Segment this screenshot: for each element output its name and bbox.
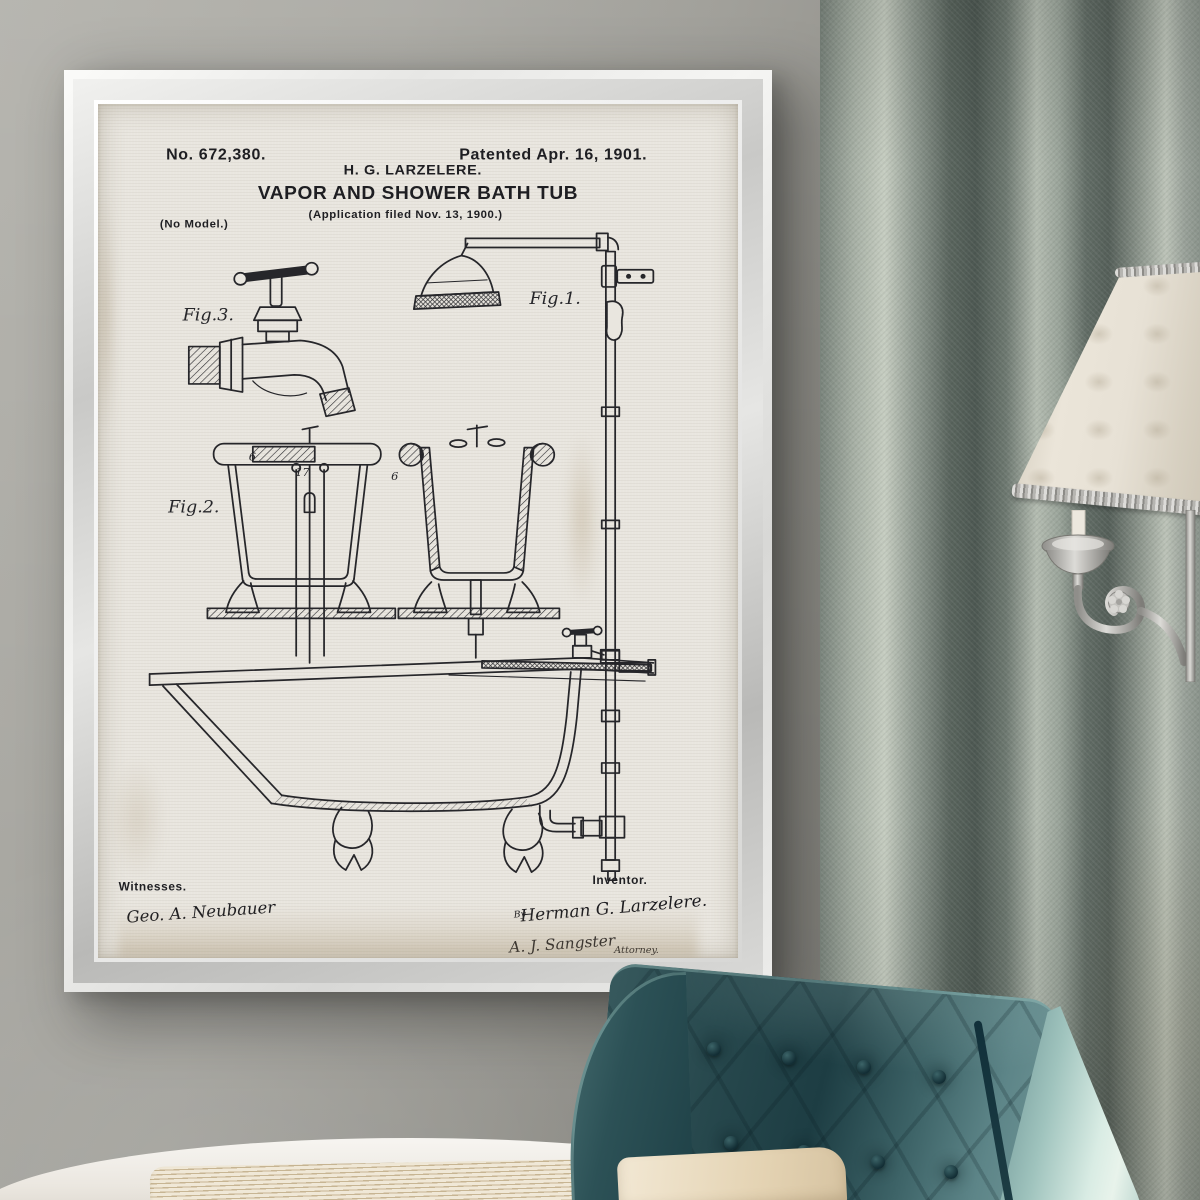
patent-drawing: No. 672,380. Patented Apr. 16, 1901. H. … xyxy=(98,104,738,958)
figure-2-sections-drawing xyxy=(207,425,559,663)
ref-6-right: 6 xyxy=(391,470,398,483)
ref-6-left: 6 xyxy=(249,451,256,464)
frame-bevel: No. 672,380. Patented Apr. 16, 1901. H. … xyxy=(73,79,763,983)
patent-number-text: No. 672,380. xyxy=(166,147,266,164)
chair-button xyxy=(932,1070,946,1084)
inventor-name-text: H. G. LARZELERE. xyxy=(344,163,482,179)
ref-17: 17 xyxy=(295,466,310,479)
lamp-arm xyxy=(1020,510,1200,682)
chair-button xyxy=(707,1042,721,1056)
patent-footer: Witnesses. Geo. A. Neubauer Inventor. By… xyxy=(119,874,708,956)
chair-button xyxy=(857,1060,871,1074)
no-model-text: (No Model.) xyxy=(160,218,229,230)
attorney-label: Attorney. xyxy=(613,945,659,956)
claw-foot xyxy=(503,809,542,872)
fig1-label: Fig.1. xyxy=(528,289,580,309)
inventor-label: Inventor. xyxy=(592,874,647,887)
witness-signature: Geo. A. Neubauer xyxy=(126,898,277,927)
patent-date-text: Patented Apr. 16, 1901. xyxy=(459,147,647,164)
chair-button xyxy=(944,1165,958,1179)
scroll-arm xyxy=(1078,589,1141,630)
chair-button xyxy=(871,1155,885,1169)
chair-button xyxy=(782,1051,796,1065)
fig2-label: Fig.2. xyxy=(167,497,219,517)
figure-1-shower-drawing xyxy=(414,233,653,837)
lamp-shade xyxy=(1012,262,1200,514)
framed-patent-print: No. 672,380. Patented Apr. 16, 1901. H. … xyxy=(64,70,772,992)
patent-paper: No. 672,380. Patented Apr. 16, 1901. H. … xyxy=(98,104,738,958)
witnesses-label: Witnesses. xyxy=(119,880,187,893)
main-bathtub-drawing xyxy=(150,627,656,881)
fig3-label: Fig.3. xyxy=(182,305,234,325)
patent-header: No. 672,380. Patented Apr. 16, 1901. H. … xyxy=(160,147,647,231)
chair-button xyxy=(724,1136,738,1150)
frame-inner-lip: No. 672,380. Patented Apr. 16, 1901. H. … xyxy=(94,100,742,962)
bobeche-dish xyxy=(1042,535,1114,574)
sconce-lamp xyxy=(1012,262,1200,682)
application-line-text: (Application filed Nov. 13, 1900.) xyxy=(309,209,503,221)
arm-to-wall xyxy=(1141,611,1184,662)
attorney-signature: A. J. Sangster xyxy=(507,931,618,956)
inventor-signature: Herman G. Larzelere. xyxy=(518,890,707,926)
room-photo: No. 672,380. Patented Apr. 16, 1901. H. … xyxy=(0,0,1200,1200)
wall-rod xyxy=(1186,510,1195,682)
claw-foot xyxy=(333,807,372,870)
figure-3-faucet-drawing xyxy=(189,263,355,417)
patent-title-text: VAPOR AND SHOWER BATH TUB xyxy=(258,183,578,204)
